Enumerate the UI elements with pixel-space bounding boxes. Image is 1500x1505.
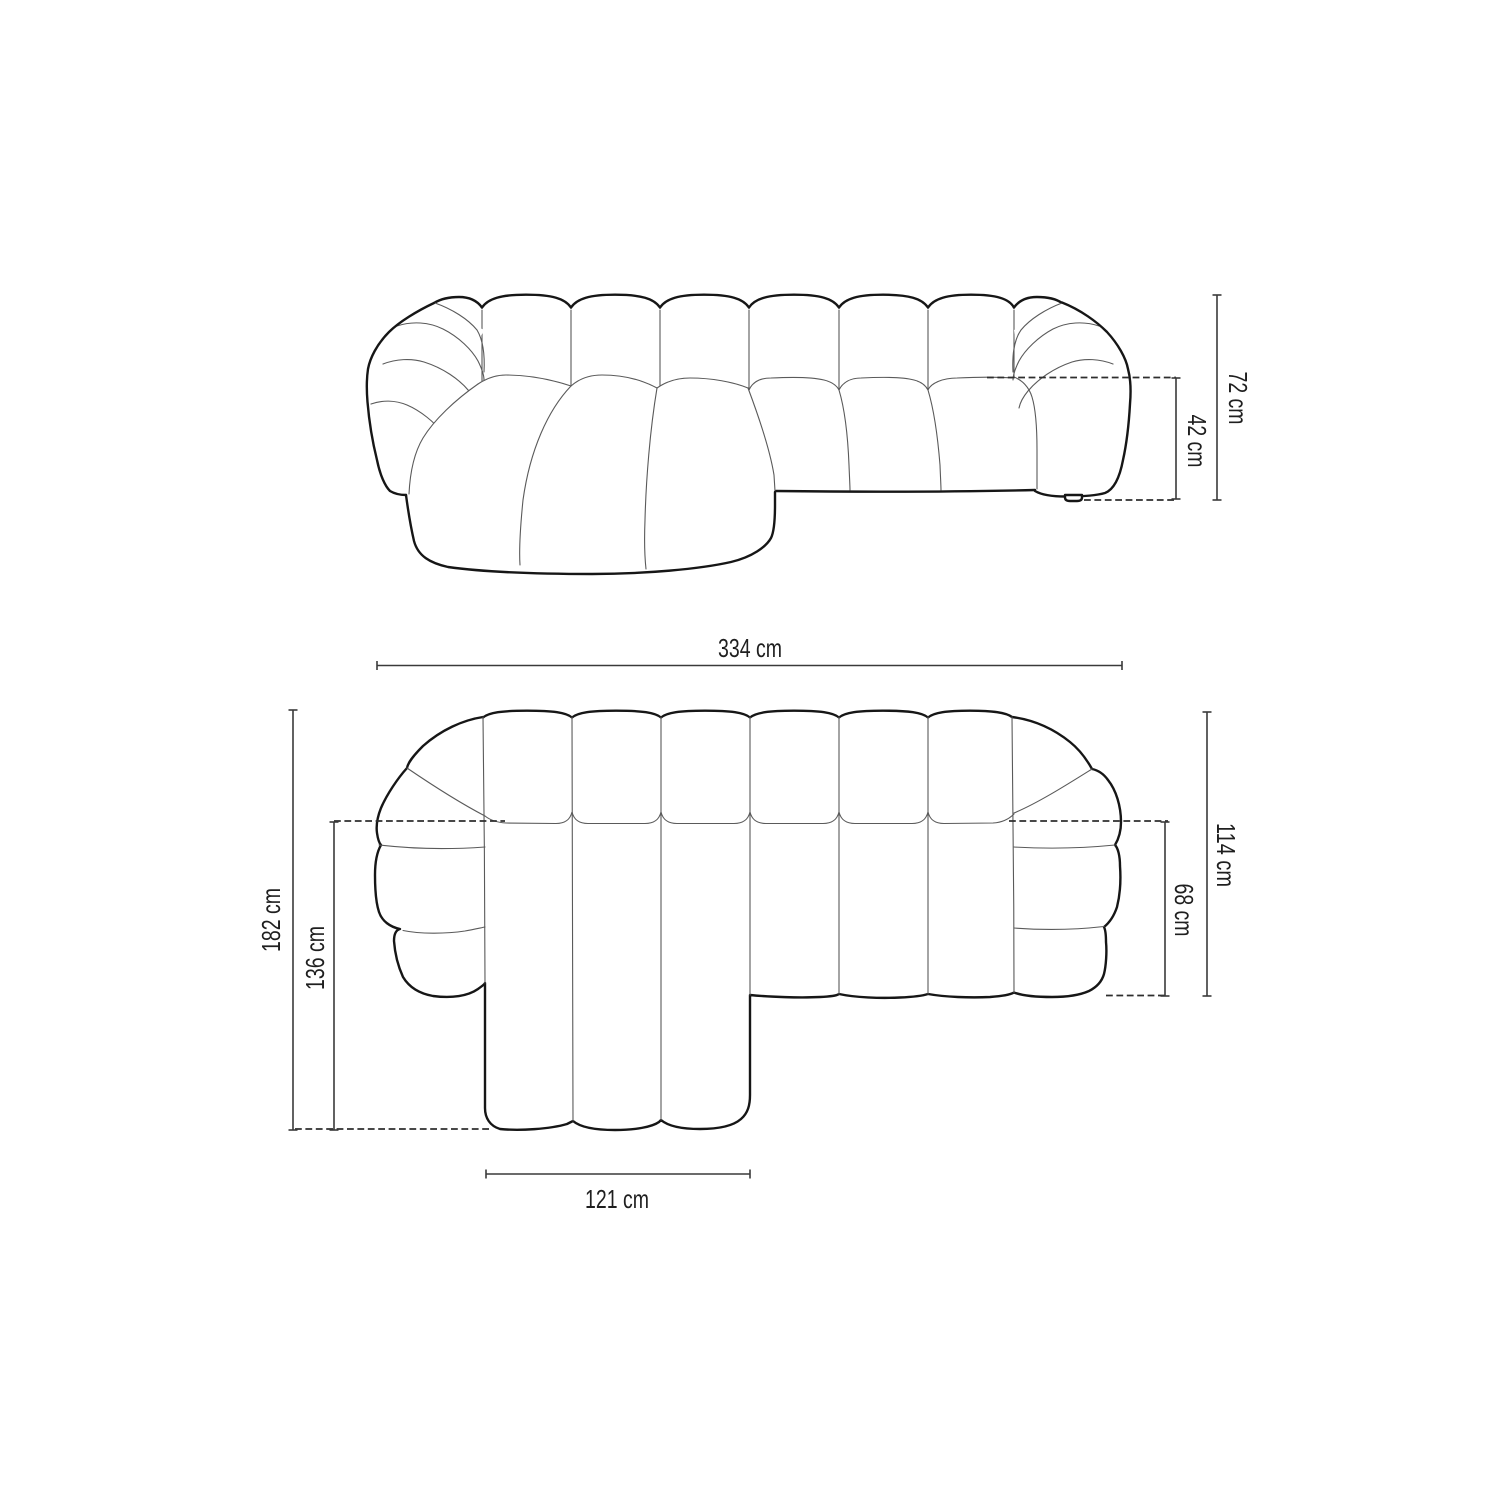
svg-text:334 cm: 334 cm (718, 633, 782, 663)
svg-text:72 cm: 72 cm (1223, 372, 1253, 425)
svg-text:121 cm: 121 cm (585, 1184, 649, 1214)
svg-text:136 cm: 136 cm (300, 926, 330, 990)
svg-text:182 cm: 182 cm (256, 888, 286, 952)
svg-text:42 cm: 42 cm (1182, 415, 1212, 468)
svg-text:114 cm: 114 cm (1211, 823, 1241, 887)
svg-text:68 cm: 68 cm (1169, 884, 1199, 937)
